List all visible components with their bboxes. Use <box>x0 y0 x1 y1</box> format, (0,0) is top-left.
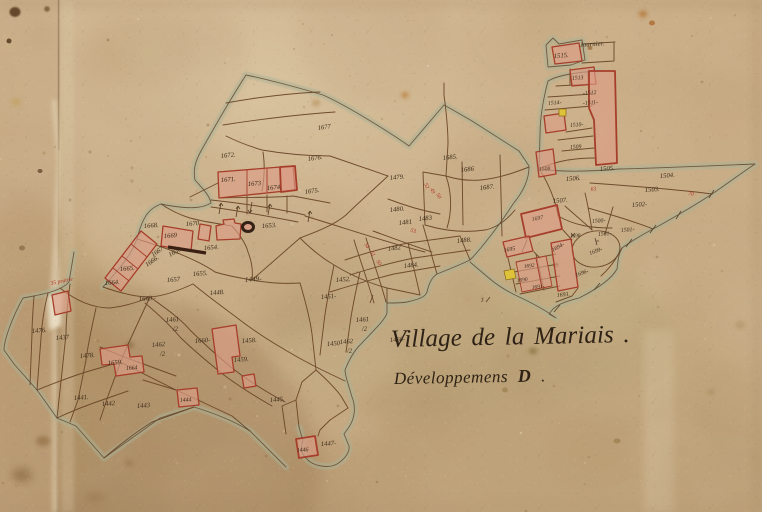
svg-text:1654.: 1654. <box>204 244 220 252</box>
svg-text:1698: 1698 <box>570 233 582 240</box>
svg-text:Développemens D .: Développemens D . <box>393 365 546 388</box>
svg-text:1669: 1669 <box>164 232 178 240</box>
svg-text:1686: 1686 <box>460 166 475 174</box>
svg-text:-1512: -1512 <box>583 90 597 97</box>
svg-text:1670: 1670 <box>186 220 200 228</box>
svg-text:1462: 1462 <box>340 338 354 346</box>
svg-text:1451-: 1451- <box>321 293 337 301</box>
svg-text:1674.: 1674. <box>267 184 283 192</box>
svg-text:1507.: 1507. <box>553 197 569 205</box>
svg-text:1452.: 1452. <box>336 276 352 284</box>
svg-text:1504.: 1504. <box>660 172 676 180</box>
svg-text:1459.: 1459. <box>234 356 250 364</box>
svg-text:1449-: 1449- <box>245 275 263 284</box>
svg-text:1483: 1483 <box>418 215 433 223</box>
svg-text:1444: 1444 <box>180 396 192 404</box>
svg-text:1660-: 1660- <box>195 337 211 345</box>
svg-text:1446: 1446 <box>297 446 309 454</box>
svg-text:1458.: 1458. <box>242 337 258 345</box>
svg-text:1478.: 1478. <box>80 352 96 360</box>
svg-text:1673: 1673 <box>248 180 262 188</box>
svg-text:1665.: 1665. <box>120 265 136 273</box>
svg-text:1655.: 1655. <box>193 270 209 278</box>
svg-text:1513: 1513 <box>572 75 584 82</box>
svg-text:1447-: 1447- <box>321 440 337 448</box>
svg-text:1501-: 1501- <box>621 227 635 234</box>
svg-text:1437: 1437 <box>56 334 70 342</box>
svg-text:1441.: 1441. <box>74 394 90 402</box>
svg-text:1502-: 1502- <box>632 201 648 209</box>
svg-text:1509: 1509 <box>570 144 582 151</box>
svg-text:1508: 1508 <box>539 166 551 173</box>
svg-text:1668.: 1668. <box>144 222 160 230</box>
svg-text:1505.: 1505. <box>600 165 616 173</box>
svg-text:1501-: 1501- <box>598 231 612 238</box>
svg-text:1690: 1690 <box>517 277 529 284</box>
svg-text:1503.: 1503. <box>645 186 661 194</box>
svg-text:1442: 1442 <box>102 400 116 408</box>
svg-text:1664: 1664 <box>126 364 138 372</box>
svg-text:1653.: 1653. <box>262 222 278 230</box>
svg-text:1659.: 1659. <box>108 359 124 367</box>
svg-text:1663 -: 1663 - <box>139 295 156 303</box>
svg-text:1461: 1461 <box>166 316 180 324</box>
svg-text:1500-: 1500- <box>592 218 606 225</box>
svg-text:1462: 1462 <box>152 341 166 349</box>
svg-text:1476.: 1476. <box>32 327 48 335</box>
svg-text:1515.: 1515. <box>554 52 570 60</box>
svg-text:1445.: 1445. <box>270 396 286 404</box>
svg-text:1481: 1481 <box>398 219 412 227</box>
svg-text:1671.: 1671. <box>221 176 237 184</box>
svg-text:1443: 1443 <box>137 402 151 410</box>
svg-text:1448.: 1448. <box>210 289 226 297</box>
svg-text:1506.: 1506. <box>566 175 582 183</box>
svg-text:1657: 1657 <box>167 276 181 284</box>
svg-text:-1511-: -1511- <box>583 100 598 107</box>
svg-text:1692: 1692 <box>524 263 536 270</box>
svg-text:1461: 1461 <box>356 316 370 324</box>
svg-text:1510-: 1510- <box>570 122 584 129</box>
svg-text:Village de la Mariais .: Village de la Mariais . <box>391 321 630 353</box>
svg-text:1664.: 1664. <box>105 279 121 287</box>
svg-text:1514-: 1514- <box>548 99 562 107</box>
